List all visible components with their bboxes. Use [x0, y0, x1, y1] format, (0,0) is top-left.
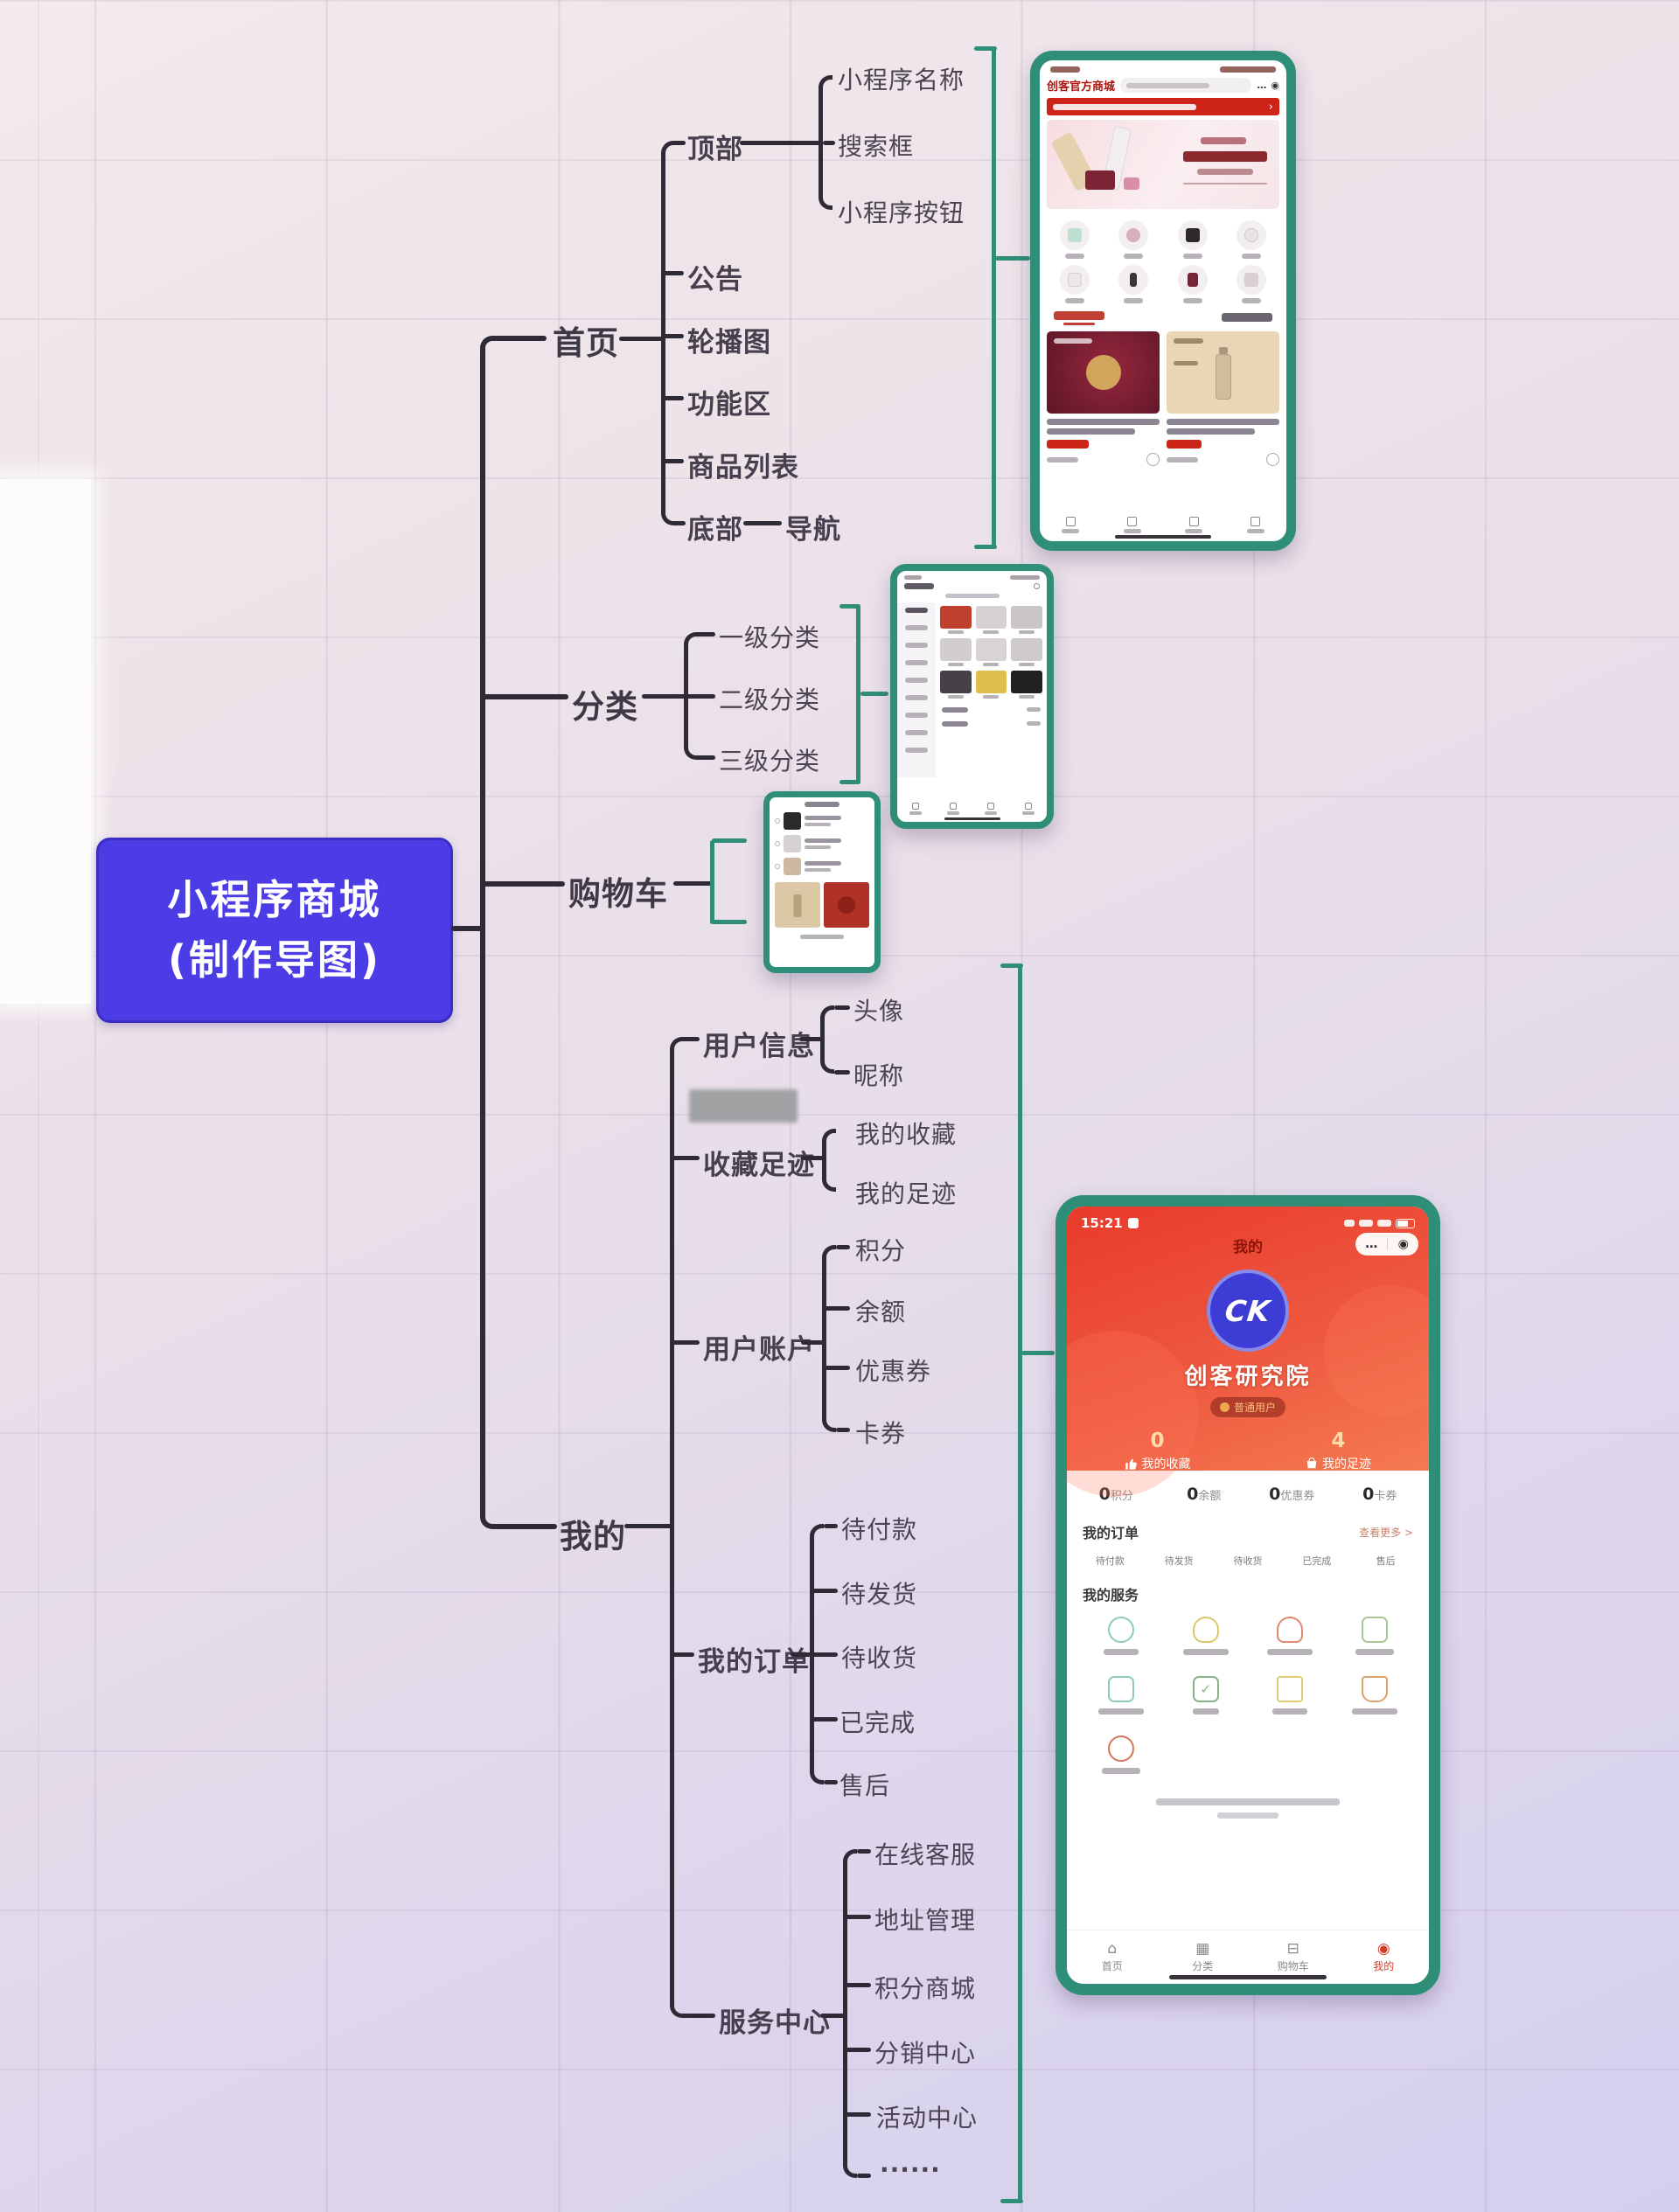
member-badge: 普通用户: [1210, 1397, 1285, 1417]
status-bar-placeholder: [1010, 575, 1040, 580]
stat-value: 4: [1331, 1429, 1345, 1452]
bracket-cart: [710, 840, 714, 924]
boxes-icon: [1108, 1676, 1134, 1702]
node-home-nav: 导航: [785, 507, 841, 546]
quick-entry-item[interactable]: [1163, 265, 1223, 303]
stat-footprints[interactable]: 4 我的足迹: [1248, 1429, 1429, 1472]
bracket-tick: [712, 920, 747, 924]
category-product[interactable]: [1011, 606, 1042, 634]
screenshot-home-page: 创客官方商城 … ◉ ›: [1030, 51, 1296, 551]
screenshot-category-page: [890, 564, 1054, 829]
quick-entry-item[interactable]: [1163, 220, 1223, 259]
sidebar-item[interactable]: [905, 643, 928, 648]
home-indicator: [1169, 1975, 1327, 1979]
badge-icon: [1220, 1402, 1230, 1412]
more-icon[interactable]: …: [1257, 80, 1266, 91]
connector: [812, 1717, 838, 1722]
tab-item[interactable]: [1040, 517, 1102, 533]
sidebar-item-active[interactable]: [905, 608, 928, 613]
node-home-products: 商品列表: [687, 445, 799, 484]
branch-category-line: [483, 694, 568, 699]
profile-header: 15:21 我的 … ◉ CK 创客研究院 普通用户 0: [1067, 1207, 1429, 1471]
bracket-nub: [860, 692, 888, 696]
bracket-home: [992, 46, 996, 549]
node-coupon: 优惠券: [855, 1353, 931, 1388]
node-category-l1: 一级分类: [719, 619, 820, 654]
bracket-mine: [1018, 963, 1022, 2203]
cart-thumb: [784, 835, 801, 852]
product-shape: [1124, 177, 1139, 190]
person-icon: [1277, 1617, 1303, 1643]
logo-text: CK: [1223, 1294, 1272, 1328]
stat-favorites[interactable]: 0 我的收藏: [1067, 1429, 1248, 1472]
quick-entry-item[interactable]: [1223, 265, 1282, 303]
service-item[interactable]: [1079, 1676, 1164, 1715]
node-user-info: 用户信息: [703, 1024, 815, 1063]
root-title-line2: (制作导图): [168, 930, 381, 991]
tab-bar: [897, 803, 1047, 815]
service-grid: ✓: [1067, 1606, 1429, 1774]
category-body: [897, 602, 1047, 777]
wallet-balance[interactable]: 0余额: [1160, 1485, 1249, 1504]
node-mine: 我的: [560, 1510, 626, 1557]
cart-item[interactable]: [775, 812, 869, 830]
node-home-carousel: 轮播图: [687, 320, 771, 359]
screenshot-cart-page: [763, 791, 881, 973]
cabinet-icon: [1362, 1617, 1388, 1643]
branch-home-line: [494, 336, 547, 341]
product-card[interactable]: [1167, 331, 1279, 466]
order-aftersale[interactable]: 售后: [1351, 1551, 1420, 1568]
service-item[interactable]: [1248, 1617, 1333, 1655]
root-node: 小程序商城 (制作导图): [96, 838, 453, 1023]
tab-home[interactable]: ⌂首页: [1067, 1930, 1158, 1984]
capsule-divider: [1387, 1238, 1388, 1250]
search-input[interactable]: [1120, 78, 1251, 93]
connector: [675, 141, 686, 145]
connector: [823, 141, 835, 145]
announcement-text-bar: [1053, 104, 1196, 110]
stat-label: 我的足迹: [1322, 1455, 1371, 1472]
checkbox-icon[interactable]: [775, 864, 780, 869]
home-indicator: [944, 817, 1000, 820]
list-row-bar: [1027, 721, 1041, 726]
subtab-bar[interactable]: [945, 594, 1000, 598]
node-card: 卡券: [855, 1415, 906, 1450]
service-item[interactable]: [1164, 1617, 1249, 1655]
connector: [740, 141, 820, 145]
node-home-notice: 公告: [687, 257, 743, 296]
product-shape: [1085, 170, 1115, 190]
connector: [684, 1037, 700, 1041]
connector: [624, 1524, 673, 1528]
node-order-toship: 待发货: [841, 1576, 917, 1610]
checkbox-icon: ✓: [1193, 1676, 1219, 1702]
category-product[interactable]: [976, 671, 1007, 699]
node-miniapp-name: 小程序名称: [838, 61, 965, 96]
ticket-icon: [1277, 1676, 1303, 1702]
cart-item[interactable]: [775, 835, 869, 852]
tab-item[interactable]: [1009, 803, 1047, 815]
battery-icon: [1396, 1219, 1415, 1228]
banner-text-bar: [1197, 169, 1253, 175]
connector: [672, 1652, 694, 1657]
basket-icon: [1362, 1676, 1388, 1702]
cart-item[interactable]: [775, 858, 869, 875]
quick-entry-item[interactable]: [1045, 220, 1104, 259]
product-photo: [1086, 355, 1121, 390]
node-svc-distribution: 分销中心: [874, 2035, 976, 2069]
badge-label: 普通用户: [1234, 1400, 1276, 1415]
censored-watermark: [689, 1089, 798, 1123]
node-home-top: 顶部: [687, 127, 743, 166]
search-placeholder-bar: [1126, 83, 1209, 88]
node-orders: 我的订单: [698, 1639, 810, 1679]
connector: [812, 1652, 838, 1657]
capsule-buttons[interactable]: … ◉: [1257, 80, 1279, 91]
node-nickname: 昵称: [853, 1057, 904, 1092]
category-product[interactable]: [976, 638, 1007, 666]
node-avatar: 头像: [853, 992, 904, 1027]
orders-more-link[interactable]: 查看更多 >: [1359, 1525, 1413, 1540]
category-product[interactable]: [1011, 671, 1042, 699]
page-title-bar: [904, 583, 934, 589]
status-bar-placeholder: [904, 575, 922, 580]
connector: [663, 334, 684, 338]
category-product[interactable]: [940, 671, 972, 699]
connector: [801, 1340, 824, 1345]
connector: [675, 521, 686, 525]
order-status-row: 待付款 待发货 待收货 已完成 售后: [1067, 1548, 1429, 1576]
connector: [834, 1005, 850, 1010]
avatar[interactable]: CK: [1207, 1269, 1289, 1352]
person-icon: ◉: [1377, 1942, 1390, 1957]
banner-title-bar: [1183, 151, 1267, 162]
orders-section-title: 我的订单: [1083, 1521, 1139, 1542]
thumb-up-icon: [1125, 1457, 1138, 1471]
connector: [845, 1983, 871, 1987]
node-account: 用户账户: [703, 1327, 815, 1367]
quick-entry-item[interactable]: [1045, 265, 1104, 303]
node-svc-activity: 活动中心: [876, 2099, 978, 2134]
carousel-banner[interactable]: [1047, 120, 1279, 209]
quick-entry-grid: [1040, 213, 1286, 305]
connector: [663, 271, 684, 275]
main-trunk: [480, 350, 485, 1516]
subtrunk: [820, 1018, 825, 1063]
order-completed[interactable]: 已完成: [1282, 1551, 1351, 1568]
header-stats: 0 我的收藏 4 我的足迹: [1067, 1429, 1429, 1472]
recommend-photo[interactable]: [824, 882, 869, 928]
connector: [791, 1652, 812, 1657]
home-header: 创客官方商城 … ◉: [1040, 73, 1286, 96]
node-home-features: 功能区: [687, 382, 771, 421]
connector: [698, 632, 715, 636]
service-section-title: 我的服务: [1067, 1576, 1429, 1606]
node-miniapp-button: 小程序按钮: [838, 194, 965, 229]
node-home: 首页: [553, 316, 619, 364]
grid-icon: ▦: [1195, 1942, 1209, 1957]
connector: [845, 2048, 871, 2052]
status-time: 15:21: [1081, 1215, 1123, 1231]
network-icon: [1108, 1736, 1134, 1762]
chevron-right-icon: ›: [1269, 101, 1273, 113]
section-headers: [1040, 305, 1286, 327]
connector: [619, 337, 665, 341]
tab-mine[interactable]: ◉我的: [1339, 1930, 1430, 1984]
product-photo: [1219, 347, 1228, 354]
price-bar: [1047, 440, 1089, 449]
section-hot[interactable]: [1054, 311, 1104, 325]
target-icon[interactable]: ◉: [1398, 1237, 1409, 1251]
connector: [642, 694, 687, 699]
service-item[interactable]: ✓: [1164, 1676, 1249, 1715]
category-product[interactable]: [976, 606, 1007, 634]
connector: [836, 1428, 850, 1432]
connector: [824, 1366, 850, 1370]
bracket-nub: [995, 256, 1030, 261]
connector: [824, 1306, 850, 1311]
footer-note: [1067, 1798, 1429, 1819]
branch-cart-line: [483, 881, 565, 887]
connector: [799, 1037, 822, 1041]
status-app-icon: [1128, 1218, 1139, 1228]
capsule-buttons[interactable]: … ◉: [1355, 1233, 1418, 1256]
cart-icon: ⊟: [1287, 1942, 1299, 1957]
section-new[interactable]: [1222, 313, 1272, 322]
store-name: 创客官方商城: [1047, 77, 1115, 94]
footer-bar: [800, 935, 844, 939]
bracket-tick: [974, 545, 997, 549]
status-bar: [1050, 66, 1276, 73]
node-search-box: 搜索框: [838, 128, 914, 163]
node-favorites: 收藏足迹: [703, 1143, 815, 1182]
sidebar-item[interactable]: [905, 678, 928, 683]
wallet-card[interactable]: 0卡券: [1336, 1485, 1425, 1504]
subtrunk: [822, 1257, 826, 1420]
node-my-footprint: 我的足迹: [855, 1175, 957, 1210]
mine-subtrunk: [670, 1051, 674, 2006]
node-order-aftersale: 售后: [839, 1767, 890, 1802]
category-grid-panel: [936, 602, 1047, 777]
nickname: 创客研究院: [1067, 1359, 1429, 1391]
banner-text-bar: [1201, 137, 1246, 144]
tab-item[interactable]: [935, 803, 972, 815]
recommend-photo[interactable]: [775, 882, 820, 928]
announcement-bar[interactable]: ›: [1047, 98, 1279, 115]
add-cart-icon[interactable]: [1266, 453, 1279, 466]
connector: [857, 1849, 871, 1854]
bracket-tick: [839, 780, 860, 784]
connector: [845, 1915, 871, 1919]
status-time-placeholder: [1050, 66, 1080, 73]
status-icons: [1344, 1219, 1415, 1228]
node-order-completed: 已完成: [839, 1704, 916, 1739]
connector: [836, 1245, 850, 1249]
root-title-line1: 小程序商城: [168, 870, 382, 930]
node-category-l2: 二级分类: [719, 681, 820, 716]
service-item[interactable]: [1248, 1676, 1333, 1715]
connector: [820, 2014, 845, 2018]
connector: [672, 1156, 700, 1160]
connector: [824, 1524, 838, 1528]
recommend-images: [775, 882, 869, 928]
node-points: 积分: [855, 1232, 906, 1267]
connector: [672, 1340, 700, 1345]
tab-item[interactable]: [1225, 517, 1287, 533]
node-home-bottom: 底部: [687, 507, 743, 546]
node-balance: 余额: [855, 1293, 906, 1328]
connector: [743, 521, 782, 525]
background-highlight: [0, 479, 91, 1004]
connector: [673, 881, 714, 886]
wallet-coupon[interactable]: 0优惠券: [1248, 1485, 1336, 1504]
cart-thumb: [784, 858, 801, 875]
list-row-bar: [1027, 707, 1041, 712]
bracket-nub: [1021, 1351, 1055, 1355]
service-item[interactable]: [1079, 1617, 1164, 1655]
tab-item[interactable]: [1163, 517, 1225, 533]
list-row-bar[interactable]: [942, 721, 968, 727]
sidebar-item[interactable]: [905, 660, 928, 665]
node-category: 分类: [572, 680, 638, 727]
node-svc-address: 地址管理: [874, 1902, 976, 1937]
price-bar: [1167, 440, 1202, 449]
quick-entry-item[interactable]: [1104, 265, 1164, 303]
status-icons-placeholder: [1220, 66, 1276, 73]
order-toship[interactable]: 待发货: [1145, 1551, 1214, 1568]
stat-value: 0: [1150, 1429, 1164, 1452]
tab-item[interactable]: [897, 803, 935, 815]
more-icon[interactable]: …: [1365, 1237, 1377, 1251]
node-service: 服务中心: [719, 2000, 831, 2040]
quick-entry-item[interactable]: [1223, 220, 1282, 259]
subtrunk: [822, 1141, 826, 1181]
sidebar-item[interactable]: [905, 625, 928, 630]
target-icon[interactable]: ◉: [1271, 80, 1279, 91]
home-indicator: [1115, 535, 1211, 539]
order-unpaid[interactable]: 待付款: [1076, 1551, 1145, 1568]
page-title-bar: [805, 802, 839, 807]
connector: [686, 694, 715, 699]
branch-mine-line: [494, 1524, 557, 1529]
node-my-fav: 我的收藏: [855, 1116, 957, 1151]
headset-icon: [1108, 1617, 1134, 1643]
connector: [857, 2174, 871, 2178]
node-order-unpaid: 待付款: [841, 1511, 917, 1546]
status-bar: 15:21: [1067, 1207, 1429, 1231]
tab-bar: [1040, 517, 1286, 533]
category-product[interactable]: [940, 606, 972, 634]
category-product[interactable]: [1011, 638, 1042, 666]
stat-label: 我的收藏: [1142, 1455, 1191, 1472]
service-item[interactable]: [1333, 1617, 1418, 1655]
connector: [812, 1589, 838, 1593]
node-cart: 购物车: [568, 867, 668, 915]
checkbox-icon[interactable]: [775, 818, 780, 824]
sidebar-item[interactable]: [905, 730, 928, 735]
product-card[interactable]: [1047, 331, 1160, 466]
subtrunk: [843, 1861, 847, 2167]
node-svc-more: ......: [880, 2149, 941, 2178]
capsule-icon[interactable]: [1034, 583, 1040, 589]
cart-thumb: [784, 812, 801, 830]
add-cart-icon[interactable]: [1146, 453, 1160, 466]
home-icon: ⌂: [1107, 1942, 1117, 1957]
sidebar-item[interactable]: [905, 713, 928, 718]
bracket-tick: [712, 838, 747, 843]
service-item[interactable]: [1333, 1676, 1418, 1715]
category-sidebar[interactable]: [897, 602, 936, 777]
tab-item[interactable]: [972, 803, 1010, 815]
order-toreceive[interactable]: 待收货: [1214, 1551, 1283, 1568]
node-category-l3: 三级分类: [719, 742, 820, 777]
node-order-toreceive: 待收货: [841, 1639, 917, 1674]
bracket-tick: [1000, 2199, 1023, 2203]
connector: [845, 2112, 871, 2117]
banner-rule: [1183, 183, 1267, 184]
checkbox-icon[interactable]: [775, 841, 780, 846]
connector: [801, 1156, 824, 1160]
screenshot-profile-page: 15:21 我的 … ◉ CK 创客研究院 普通用户 0: [1055, 1195, 1440, 1995]
node-svc-online: 在线客服: [874, 1836, 976, 1871]
bulb-icon: [1193, 1617, 1219, 1643]
sidebar-item[interactable]: [905, 748, 928, 753]
connector: [663, 459, 684, 463]
category-product[interactable]: [940, 638, 972, 666]
bag-icon: [1306, 1457, 1318, 1470]
node-svc-points-mall: 积分商城: [874, 1970, 976, 2005]
list-row-bar[interactable]: [942, 707, 968, 713]
nav-bar: 我的 … ◉: [1067, 1235, 1429, 1261]
connector: [834, 1070, 850, 1075]
connector: [698, 755, 715, 760]
tab-item[interactable]: [1102, 517, 1164, 533]
service-item[interactable]: [1079, 1736, 1164, 1774]
product-list: [1040, 327, 1286, 466]
connector: [824, 1780, 838, 1784]
quick-entry-item[interactable]: [1104, 220, 1164, 259]
sidebar-item[interactable]: [905, 695, 928, 700]
connector: [684, 2014, 715, 2018]
connector: [663, 396, 684, 400]
